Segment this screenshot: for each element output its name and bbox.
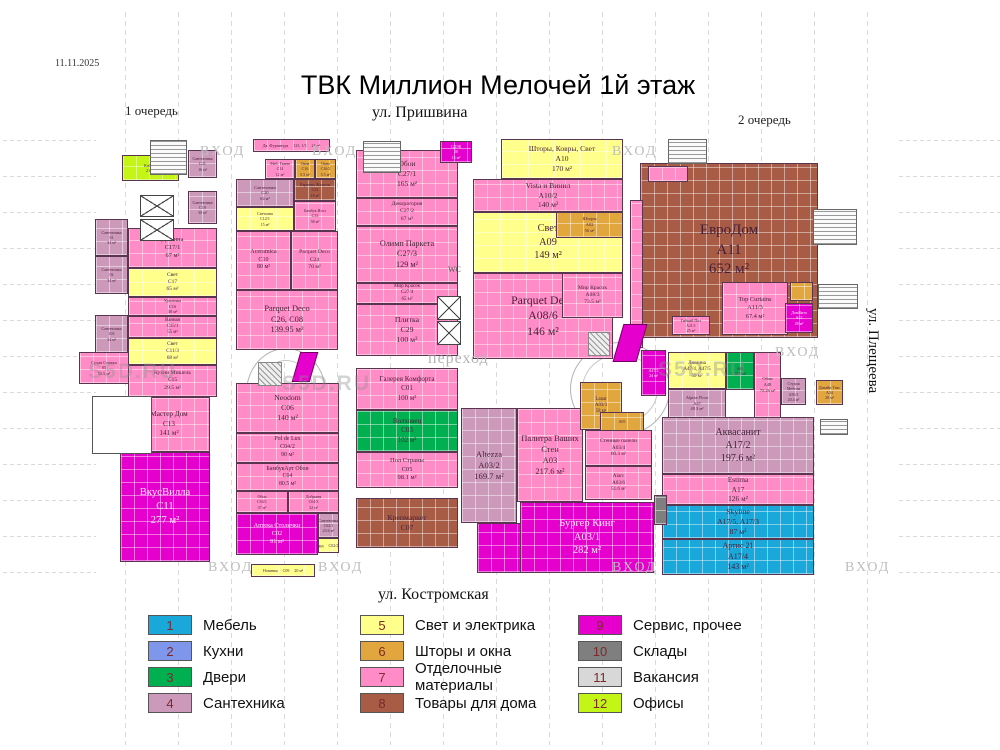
unit-c02-2: ЛомбардC02/27.6 м²: [318, 538, 339, 553]
street-bottom-label: ул. Костромская: [378, 586, 489, 604]
legend-swatch: 5: [360, 615, 404, 635]
unit-a03-6: AlarcA03/651.6 м²: [585, 466, 652, 500]
unit-c05: Пол СтраныC0598.1 м²: [356, 452, 458, 488]
legend-item-7: 7Отделочные материалы: [360, 664, 578, 690]
legend: 1Мебель2Кухни3Двери4Сантехника5Свет и эл…: [148, 612, 778, 716]
unit-c17: СветC1765 м²: [128, 268, 217, 297]
entrance-label: ВХОД: [208, 560, 253, 576]
unit-103: Сантехника10334 м²: [95, 315, 128, 353]
unit-a47-4-a47-5: ЛюминаA47/4, A47/559 м²: [668, 352, 726, 389]
legend-label: Офисы: [633, 695, 684, 712]
unit-c22: Карнизы ЖалюзиC2218 м²: [294, 179, 336, 201]
legend-label: Вакансия: [633, 669, 699, 686]
entrance-label: ВХОД: [775, 345, 820, 361]
unit-c02: Аптека СтоличкиC0291 м²: [236, 513, 318, 555]
unit-c15-1: ВаннаяC15/155 м²: [128, 316, 217, 338]
elevator-icon: [437, 296, 461, 320]
unit-a11-3: Top CurtainsA11/367.4 м²: [722, 282, 788, 335]
unit-a03: Палитра Ваших СтенA03217.6 м²: [517, 408, 583, 502]
unit-c02-1: СантехникаC02/123.6 м²: [318, 513, 339, 538]
unit-c10: AceramicaC1080 м²: [236, 231, 291, 290]
unit-c27-2: ДекораторияC27/267 м²: [356, 198, 458, 226]
entrance-label: ВХОД: [612, 144, 657, 160]
unit-a33: ДомВитаA3328 м²: [785, 303, 813, 333]
unit-block: [790, 282, 813, 301]
legend-item-10: 10Склады: [578, 638, 778, 664]
unit-c01: Галерея КомфортаC01100 м²: [356, 368, 458, 410]
unit-c19: СантехникаC1930 м²: [188, 191, 217, 224]
stairs-icon: [150, 140, 187, 175]
elevator-icon: [140, 195, 174, 217]
legend-label: Отделочные материалы: [415, 660, 578, 694]
unit-20: СДЭК2015 м²: [440, 141, 472, 163]
entrance-label: ВХОД: [612, 560, 657, 576]
elevator-icon: [140, 219, 174, 241]
unit-block: [477, 523, 521, 573]
unit-a50-1: Студия МебелиA50/120.4 м²: [781, 378, 806, 405]
street-top-label: ул. Пришвина: [372, 104, 468, 122]
unit-c20: СантехникаC2064 м²: [236, 179, 294, 207]
unit-a17-5-a17-3: SkylineA17/5, A17/387 м²: [662, 505, 814, 539]
legend-item-5: 5Свет и электрика: [360, 612, 578, 638]
legend-item-4: 4Сантехника: [148, 690, 360, 716]
unit-a03-2: AltezzaA03/2169.7 м²: [461, 408, 517, 523]
unit-c15: Кухни МишельC1529.5 м²: [128, 365, 217, 397]
legend-label: Свет и электрика: [415, 617, 535, 634]
elevator-icon: [437, 321, 461, 345]
unit-c04-2: Pol de LuxC04/290 м²: [236, 433, 339, 463]
legend-swatch: 7: [360, 667, 404, 687]
stairs-icon: [668, 139, 707, 164]
unit-c16: ОкнаC165.5 м²: [295, 159, 315, 179]
unit-c26-c08: Parquet DecoC26, C08139.95 м²: [236, 290, 338, 350]
entrance-label: ВХОД: [318, 560, 363, 576]
unit-c24: Parquet DecoC2470 м²: [291, 231, 338, 290]
unit-c16-2: ОкнаC16/25.5 м²: [315, 159, 336, 179]
unit-c09: НовинкаC0920 м²: [251, 564, 315, 577]
legend-item-1: 1Мебель: [148, 612, 360, 638]
unit-a10-2: Vista и ВинилA10/2140 м²: [473, 179, 623, 212]
unit-a47: Alpine FloorA4749.3 м²: [668, 389, 726, 418]
unit-a02: ШторыA0256 м²: [556, 212, 623, 238]
unit-block: [654, 495, 667, 525]
legend-swatch: 4: [148, 693, 192, 713]
legend-swatch: 11: [578, 667, 622, 687]
plan-date: 11.11.2025: [55, 58, 99, 69]
unit-01: Сантехника0134 м²: [95, 219, 128, 256]
page-title: ТВК Миллион Мелочей 1й этаж: [238, 70, 758, 101]
legend-swatch: 6: [360, 641, 404, 661]
legend-swatch: 2: [148, 641, 192, 661]
legend-label: Склады: [633, 643, 687, 660]
unit-a03-4: Стенные панелиA03/460.3 м²: [585, 430, 652, 466]
passage-label: переход: [428, 350, 489, 368]
escalator-hatch: [588, 332, 610, 356]
construction-grid-right: [896, 140, 1000, 585]
unit-a17-2: АквасанитA17/2197.6 м²: [662, 417, 814, 474]
legend-label: Мебель: [203, 617, 257, 634]
stairs-icon: [363, 141, 401, 173]
unit-a46: A4630.5 м²: [726, 352, 754, 390]
unit-c07: КрепмаркетC07: [356, 498, 458, 548]
stairs-icon: [820, 419, 848, 435]
legend-label: Товары для дома: [415, 695, 536, 712]
unit-a11-1: Гибкий ПолA11/125 м²: [672, 316, 710, 335]
unit-c14: Меб. ТканиC1412 м²: [265, 159, 295, 179]
legend-swatch: 10: [578, 641, 622, 661]
unit-c04-3: ДобрыняC04/332 м²: [288, 491, 339, 513]
legend-swatch: 3: [148, 667, 192, 687]
unit-c11: ВкусВиллаC11277 м²: [120, 452, 210, 562]
unit-c04-1: ОбоиC04/137 м²: [236, 491, 288, 513]
stairs-icon: [818, 284, 858, 309]
legend-item-2: 2Кухни: [148, 638, 360, 664]
unit-c27-3: Олимп ПаркетаC27/3129 м²: [356, 226, 458, 283]
unit-a34: Дизайн ТексA3428 м²: [816, 380, 843, 405]
legend-item-9: 9Сервис, прочее: [578, 612, 778, 638]
escalator-hatch: [258, 362, 282, 386]
unit-c12-1: СветланаC12/115 м²: [236, 207, 294, 231]
unit-block: [648, 166, 688, 182]
legend-label: Кухни: [203, 643, 243, 660]
unit-a17-4: Артис 21A17/4143 м²: [662, 539, 814, 575]
legend-swatch: 9: [578, 615, 622, 635]
legend-label: Сантехника: [203, 695, 285, 712]
legend-swatch: 8: [360, 693, 404, 713]
legend-item-3: 3Двери: [148, 664, 360, 690]
legend-item-12: 12Офисы: [578, 690, 778, 716]
unit-c06: NeodomC06140 м²: [236, 383, 339, 433]
legend-swatch: 12: [578, 693, 622, 713]
unit-c11-3: СветC11/368 м²: [128, 338, 217, 365]
unit-a05: A05: [600, 412, 644, 432]
entrance-label: ВХОД: [200, 144, 245, 160]
unit-a08-3: Мир КрасокA08/373.5 м²: [562, 273, 623, 318]
unit-c33: Бамбук ИзолC3358 м²: [294, 201, 336, 231]
street-right-label: ул. Плещеева: [864, 308, 881, 393]
legend-label: Сервис, прочее: [633, 617, 742, 634]
legend-item-11: 11Вакансия: [578, 664, 778, 690]
phase-2-label: 2 очередь: [738, 112, 791, 128]
stairs-icon: [813, 209, 857, 245]
unit-a17: EstimaA17126 м²: [662, 474, 814, 505]
unit-c16: УралочкаC1630 м²: [128, 297, 217, 316]
legend-label: Двери: [203, 669, 246, 686]
phase-1-label: 1 очередь: [125, 103, 178, 119]
entrance-label: ВХОД: [312, 144, 357, 160]
floor-plan-page: 11.11.2025 ТВК Миллион Мелочей 1й этаж 1…: [0, 0, 1000, 750]
unit-c04: БамбукАрт ОбоиC0480.5 м²: [236, 463, 339, 491]
legend-label: Шторы и окна: [415, 643, 511, 660]
unit-05: Сухая Стяжка0555.5 м²: [79, 352, 129, 384]
unit-a48: ОбоиA4875.26 м²: [754, 352, 781, 418]
wc-label: WC: [448, 265, 461, 274]
unit-a47-2: A47/224 м²: [641, 350, 666, 396]
legend-swatch: 1: [148, 615, 192, 635]
entrance-label: ВХОД: [845, 560, 890, 576]
legend-item-8: 8Товары для дома: [360, 690, 578, 716]
unit-a10: Шторы, Ковры, СветA10170 м²: [501, 139, 623, 179]
unit-02: Сантехника0234 м²: [95, 256, 128, 294]
unit-c03: ВолховецC03102 м²: [356, 410, 458, 452]
utility-room: [92, 396, 152, 454]
